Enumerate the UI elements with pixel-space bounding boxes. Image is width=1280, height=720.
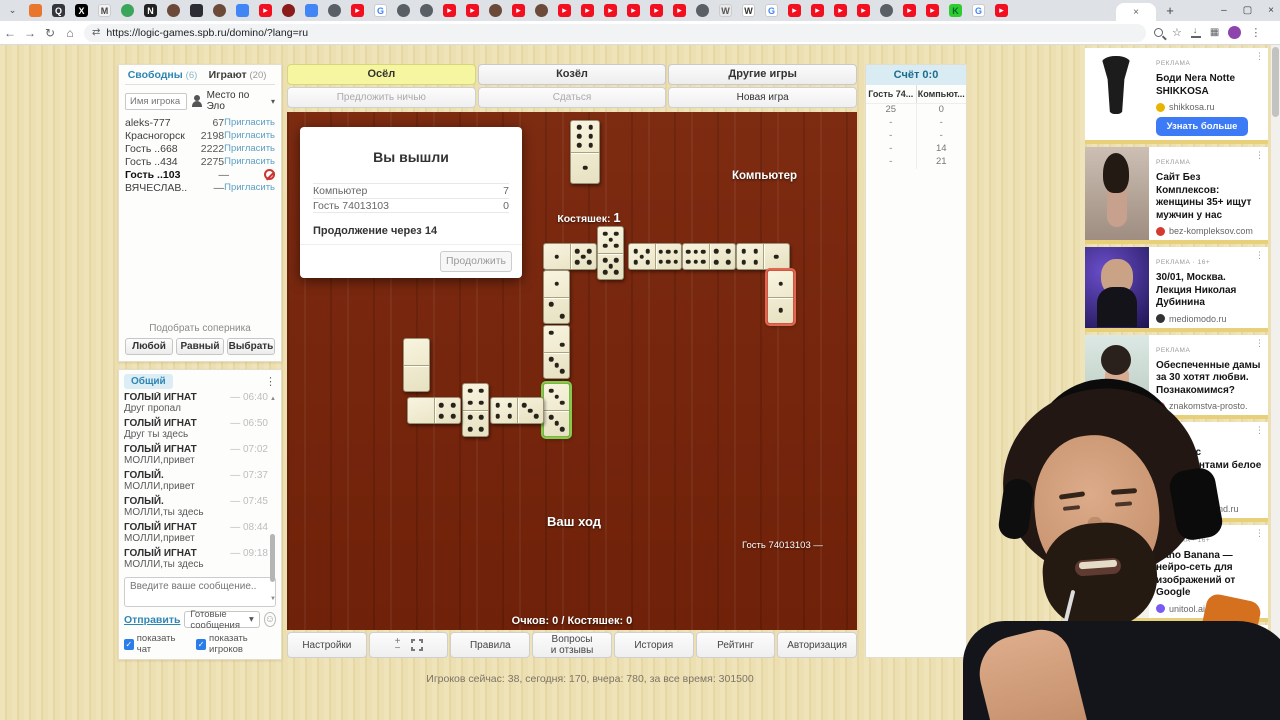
toolbar-button[interactable]: Рейтинг: [696, 632, 776, 658]
player-name: Гость ..103: [125, 169, 197, 181]
pip: [714, 260, 719, 265]
domino-half: [434, 398, 461, 423]
domino-half: [404, 365, 429, 392]
zoom-in-out-icon[interactable]: +−: [395, 638, 401, 652]
domino-half: [408, 398, 434, 423]
bottom-toolbar: Настройки+−ПравилаВопросыи отзывыИстория…: [287, 632, 857, 658]
message-time: — 07:37: [230, 470, 268, 481]
invite-link[interactable]: Пригласить: [224, 143, 275, 154]
ad-image: [1085, 48, 1149, 140]
game-tab[interactable]: Козёл: [478, 64, 667, 85]
pinned-tab-yt-icon[interactable]: ▸: [581, 4, 594, 17]
pinned-tab-q-icon[interactable]: Q: [52, 4, 65, 17]
domino-half: [629, 244, 655, 269]
pip: [560, 427, 565, 432]
match-button[interactable]: Любой: [125, 338, 173, 355]
ad-card[interactable]: РЕКЛАМА · 16+⋮Nano Banana — нейро-сеть д…: [1085, 525, 1268, 622]
pip: [560, 369, 565, 374]
score-row: --: [866, 130, 966, 143]
player-rating: 2198: [194, 130, 225, 142]
domino-half: [463, 384, 488, 410]
game-board[interactable]: Костяшек: 1 Компьютер Ваш ход Гость 7401…: [287, 112, 857, 630]
pip: [554, 421, 559, 426]
message-author: ГОЛЫЙ.: [124, 496, 164, 507]
corner: [411, 647, 415, 651]
ad-menu-icon[interactable]: ⋮: [1255, 528, 1264, 539]
pinned-tab-globe-icon[interactable]: [880, 4, 893, 17]
message-text: МОЛЛИ,привет: [124, 455, 268, 466]
player-rating: —: [194, 182, 225, 194]
pinned-tab-yt-icon[interactable]: ▸: [788, 4, 801, 17]
ad-card[interactable]: РЕКЛАМА · 16+⋮30/01, Москва. Лекция Нико…: [1085, 247, 1268, 332]
domino-tile-4-3: [490, 397, 544, 424]
pinned-tab-yt-icon[interactable]: ▸: [512, 4, 525, 17]
domino-tile-1-1: [767, 270, 794, 324]
toolbar-button[interactable]: Авторизация: [777, 632, 857, 658]
player-search-row: Место по Эло ▾: [125, 90, 275, 112]
pinned-tab-globe-icon[interactable]: [328, 4, 341, 17]
chat-message: ГОЛЫЙ ИГНАТ— 06:40Друг пропал: [124, 392, 268, 414]
score-rows: 250-----14-21: [866, 104, 966, 169]
game-tab[interactable]: Осёл: [287, 64, 476, 85]
message-time: — 07:02: [230, 444, 268, 455]
message-author: ГОЛЫЙ ИГНАТ: [124, 548, 197, 559]
ad-domain-icon: [1156, 402, 1165, 411]
pip: [468, 415, 473, 420]
boneyard-label: Костяшек:: [557, 213, 610, 225]
message-header: ГОЛЫЙ ИГНАТ— 06:50: [124, 418, 268, 429]
pip: [560, 314, 565, 319]
ad-title[interactable]: 30/01, Москва. Лекция Николая Дубинина: [1156, 272, 1263, 310]
ad-menu-icon[interactable]: ⋮: [1255, 150, 1264, 161]
corner: [419, 647, 423, 651]
pip: [603, 244, 608, 249]
pip: [603, 270, 608, 275]
zoom-search-icon[interactable]: [1154, 28, 1163, 37]
pinned-tab-yt-icon[interactable]: ▸: [443, 4, 456, 17]
pinned-tab-red-circle-icon[interactable]: [282, 4, 295, 17]
ad-card[interactable]: РЕКЛАМА · 16+⋮ный Гамлетльныхваря: [1085, 625, 1268, 703]
ad-cta-button[interactable]: Узнать больше: [1156, 117, 1248, 136]
domino-tile-0-0: [403, 338, 430, 392]
pinned-tab-brown-icon[interactable]: [489, 4, 502, 17]
pip: [451, 414, 456, 419]
ad-domain-text: mediomodo.ru: [1169, 314, 1227, 324]
game-tab[interactable]: Другие игры: [668, 64, 857, 85]
pinned-tab-yt-icon[interactable]: ▸: [673, 4, 686, 17]
pinned-tabs[interactable]: ⌄QXMN▸▸G▸▸▸▸▸▸▸▸▸WWG▸▸▸▸▸▸KG▸: [6, 4, 1018, 17]
toolbar-button-label: Вопросыи отзывы: [551, 634, 594, 656]
message-text: МОЛЛИ,ты здесь: [124, 507, 268, 518]
sort-label: Место по Эло: [207, 90, 268, 112]
ad-title[interactable]: Сайт Без Комплексов: женщины 35+ ищут му…: [1156, 172, 1263, 222]
ad-domain-icon: [1156, 504, 1165, 513]
pinned-tab-yt-icon[interactable]: ▸: [604, 4, 617, 17]
pinned-tab-globe-icon[interactable]: [696, 4, 709, 17]
ad-domain-row[interactable]: mediomodo.ru: [1156, 314, 1263, 324]
domino-half: [544, 326, 569, 352]
ad-title[interactable]: Nano Banana — нейро-сеть для изображений…: [1156, 550, 1263, 600]
pip: [577, 125, 582, 130]
score-title: Счёт 0:0: [866, 65, 966, 85]
message-author: ГОЛЫЙ.: [124, 470, 164, 481]
domino-half: [544, 297, 569, 324]
pinned-tab-brown-icon[interactable]: [535, 4, 548, 17]
dialog-score-row: Компьютер7: [313, 183, 509, 198]
invite-link[interactable]: Пригласить: [224, 156, 275, 167]
pinned-tab-yt-icon[interactable]: ▸: [627, 4, 640, 17]
pinned-tab-w-icon[interactable]: W: [719, 4, 732, 17]
presets-label: Готовые сообщения: [190, 609, 245, 631]
minus-icon[interactable]: −: [395, 645, 401, 652]
pip: [694, 249, 699, 254]
domino-half: [655, 244, 682, 269]
ad-title[interactable]: Боди Nera Notte SHIKKOSA: [1156, 73, 1263, 98]
message-author: ГОЛЫЙ ИГНАТ: [124, 522, 197, 533]
pinned-tab-yt-icon[interactable]: ▸: [926, 4, 939, 17]
ad-menu-icon[interactable]: ⋮: [1255, 628, 1264, 639]
score-value: -: [866, 130, 916, 143]
pinned-tab-k-icon[interactable]: K: [949, 4, 962, 17]
pinned-tab-g-icon[interactable]: G: [374, 4, 387, 17]
game-action-button[interactable]: Новая игра: [668, 87, 857, 108]
ad-body: РЕКЛАМА · 16+⋮30/01, Москва. Лекция Нико…: [1149, 247, 1268, 328]
pinned-tab-g-icon[interactable]: G: [972, 4, 985, 17]
ad-card[interactable]: РЕКЛАМА⋮Сайт Без Комплексов: женщины 35+…: [1085, 147, 1268, 244]
pip: [495, 414, 500, 419]
chat-message-list[interactable]: ГОЛЫЙ ИГНАТ— 06:40Друг пропалГОЛЫЙ ИГНАТ…: [124, 392, 276, 575]
corner: [411, 639, 415, 643]
browser-toolbar: ← → ↻ ⌂ ⇄ https://logic-games.spb.ru/dom…: [0, 21, 1280, 45]
toolbar-button[interactable]: Настройки: [287, 632, 367, 658]
chat-input[interactable]: [124, 577, 276, 607]
pip: [774, 254, 779, 259]
pip: [549, 415, 554, 420]
ad-menu-icon[interactable]: ⋮: [1255, 338, 1264, 349]
chat-header: Общий ⋮: [124, 374, 276, 389]
message-author: ГОЛЫЙ ИГНАТ: [124, 418, 197, 429]
close-button[interactable]: ×: [1268, 5, 1274, 16]
invite-link[interactable]: Пригласить: [224, 130, 275, 141]
pip: [560, 343, 565, 348]
game-action-button: Сдаться: [478, 87, 667, 108]
pinned-tab-yt-icon[interactable]: ▸: [466, 4, 479, 17]
pip: [754, 249, 759, 254]
domino-half: [544, 244, 570, 269]
pip: [451, 403, 456, 408]
zoom-group: +−: [395, 638, 423, 652]
extensions-icon[interactable]: ▦: [1210, 27, 1219, 38]
checkbox-label: показать игроков: [209, 633, 276, 655]
pip: [439, 403, 444, 408]
ad-label: РЕКЛАМА · 16+: [1156, 259, 1210, 266]
active-tab[interactable]: ×: [1116, 3, 1156, 21]
pinned-tab-green-dot-icon[interactable]: [121, 4, 134, 17]
pinned-tab-chevron-icon[interactable]: ⌄: [6, 4, 19, 17]
pinned-tab-yt-icon[interactable]: ▸: [558, 4, 571, 17]
ad-domain-icon: [1156, 314, 1165, 323]
chat-scrollbar[interactable]: ▲ ▼: [269, 398, 276, 600]
pinned-tab-yt-icon[interactable]: ▸: [650, 4, 663, 17]
ad-domain-text: unitool.ai: [1169, 604, 1205, 614]
pip: [479, 388, 484, 393]
page-scrollbar[interactable]: [1271, 45, 1280, 720]
pinned-tab-brown-icon[interactable]: [213, 4, 226, 17]
preset-messages-dropdown[interactable]: Готовые сообщения ▾: [184, 611, 259, 628]
checkbox-icon[interactable]: ✓: [124, 639, 134, 650]
pip: [549, 388, 554, 393]
domino-half: [463, 410, 488, 437]
ad-title[interactable]: Кольцо с бриллиантами белое золото: [1156, 447, 1263, 485]
ad-domain-row[interactable]: znakomstva-prosto.: [1156, 401, 1263, 411]
domino-half: [544, 271, 569, 297]
url-bar[interactable]: ⇄ https://logic-games.spb.ru/domino/?lan…: [84, 24, 1146, 42]
page: Свободны (6) Играют (20) Место по Эло ▾ …: [0, 45, 1280, 720]
domino-half: [768, 297, 793, 324]
pinned-tab-dark-icon[interactable]: [190, 4, 203, 17]
message-text: МОЛЛИ,привет: [124, 481, 268, 492]
pinned-tab-brown-icon[interactable]: [167, 4, 180, 17]
browser-tabstrip: ⌄QXMN▸▸G▸▸▸▸▸▸▸▸▸WWG▸▸▸▸▸▸KG▸: [0, 0, 1280, 21]
ad-title-partial: ный Гамлетльныхваря: [1156, 650, 1263, 688]
ad-label: РЕКЛАМА: [1156, 434, 1190, 441]
minimize-button[interactable]: –: [1221, 5, 1227, 16]
pinned-tab-yt-icon[interactable]: ▸: [351, 4, 364, 17]
back-icon[interactable]: ←: [0, 26, 20, 40]
person-hand: [972, 623, 1093, 720]
pip: [633, 260, 638, 265]
ad-domain-text: shikkosa.ru: [1169, 102, 1215, 112]
home-icon[interactable]: ⌂: [60, 26, 80, 40]
pinned-tab-p-icon[interactable]: [29, 4, 42, 17]
dialog-score-rows: Компьютер7Гость 740131030: [313, 183, 509, 213]
domino-half: [598, 253, 623, 280]
pinned-tab-doc-icon[interactable]: [305, 4, 318, 17]
pinned-tab-m-icon[interactable]: M: [98, 4, 111, 17]
ad-price: 9 151 700 ₽: [1156, 488, 1263, 500]
emoji-icon[interactable]: ☺: [264, 612, 276, 627]
chat-tab-general[interactable]: Общий: [124, 374, 173, 389]
ad-menu-icon[interactable]: ⋮: [1255, 425, 1264, 436]
pinned-tab-globe-icon[interactable]: [420, 4, 433, 17]
player-rating: —: [197, 169, 229, 181]
pip: [614, 270, 619, 275]
tab-free-players[interactable]: Свободны (6): [125, 69, 200, 81]
domino-half: [737, 244, 763, 269]
tab-count: (20): [250, 70, 267, 81]
player-list: aleks-77767ПригласитьКрасногорск2198Приг…: [125, 116, 275, 194]
pinned-tab-doc-icon[interactable]: [236, 4, 249, 17]
ad-card[interactable]: РЕКЛАМА⋮Кольцо с бриллиантами белое золо…: [1085, 422, 1268, 522]
toolbar-button[interactable]: История: [614, 632, 694, 658]
invite-link[interactable]: Пригласить: [224, 117, 275, 128]
chat-menu-icon[interactable]: ⋮: [265, 375, 276, 388]
ad-image: [1085, 422, 1149, 518]
dialog-player-name: Компьютер: [313, 185, 367, 197]
pip: [581, 254, 586, 259]
profile-avatar[interactable]: [1228, 26, 1241, 39]
pinned-tab-n-icon[interactable]: N: [144, 4, 157, 17]
scroll-down-icon[interactable]: ▼: [270, 596, 276, 602]
ad-domain-icon: [1156, 227, 1165, 236]
player-rating: 2222: [194, 143, 225, 155]
players-tabs: Свободны (6) Играют (20): [125, 69, 275, 85]
message-author: ГОЛЫЙ ИГНАТ: [124, 444, 197, 455]
ad-card[interactable]: РЕКЛАМА⋮Боди Nera Notte SHIKKOSAshikkosa…: [1085, 48, 1268, 144]
ad-menu-icon[interactable]: ⋮: [1255, 51, 1264, 62]
pip: [522, 403, 527, 408]
round-result-dialog: Вы вышли Компьютер7Гость 740131030 Продо…: [300, 127, 522, 278]
fullscreen-icon[interactable]: [411, 639, 423, 651]
pinned-tab-g-icon[interactable]: G: [765, 4, 778, 17]
browser-menu-icon[interactable]: ⋮: [1250, 26, 1261, 39]
ad-domain-row[interactable]: alrosadiamond.ru: [1156, 504, 1263, 514]
pip: [587, 260, 592, 265]
ad-label: РЕКЛАМА: [1156, 60, 1190, 67]
scroll-up-icon[interactable]: ▲: [270, 396, 276, 402]
download-icon[interactable]: [1191, 28, 1201, 38]
pip: [614, 258, 619, 263]
forward-icon[interactable]: →: [20, 26, 40, 40]
pip: [741, 260, 746, 265]
chevron-down-icon: ▾: [271, 97, 275, 106]
score-value: -: [916, 117, 967, 130]
player-name-input[interactable]: [125, 93, 187, 110]
domino-half: [709, 244, 736, 269]
pinned-tab-ww-icon[interactable]: W: [742, 4, 755, 17]
dialog-player-score: 7: [503, 185, 509, 197]
domino-tile-5-6: [628, 243, 682, 270]
pip: [549, 330, 554, 335]
ad-image: [1085, 147, 1149, 240]
matchmaking-label: Подобрать соперника: [125, 323, 275, 334]
pip: [726, 260, 731, 265]
ad-menu-icon[interactable]: ⋮: [1255, 250, 1264, 261]
match-button[interactable]: Равный: [176, 338, 224, 355]
matchmaking-buttons: ЛюбойРавныйВыбрать: [125, 338, 275, 355]
domino-half: [517, 398, 544, 423]
pip: [588, 125, 593, 130]
ad-label: РЕКЛАМА · 16+: [1156, 637, 1210, 644]
scrollbar-thumb[interactable]: [270, 534, 275, 582]
pinned-tab-yt-icon[interactable]: ▸: [995, 4, 1008, 17]
pip: [608, 264, 613, 269]
window-controls: – ▢ ×: [1221, 0, 1274, 21]
ad-card[interactable]: РЕКЛАМА⋮Обеспеченные дамы за 30 хотят лю…: [1085, 335, 1268, 420]
pinned-tab-yt-icon[interactable]: ▸: [857, 4, 870, 17]
ad-domain-text: znakomstva-prosto.: [1169, 401, 1248, 411]
ad-domain-icon: [1156, 103, 1165, 112]
pip: [778, 282, 783, 287]
person-eyebrow: [1059, 491, 1085, 500]
chat-message: ГОЛЫЙ.— 07:45МОЛЛИ,ты здесь: [124, 496, 268, 518]
tune-icon[interactable]: ⇄: [92, 27, 100, 38]
toolbar-button[interactable]: Правила: [450, 632, 530, 658]
send-message-button[interactable]: Отправить: [124, 614, 180, 626]
score-value: -: [866, 156, 916, 169]
score-value: 25: [866, 104, 916, 117]
domino-half: [571, 152, 599, 184]
screen: ⌄QXMN▸▸G▸▸▸▸▸▸▸▸▸WWG▸▸▸▸▸▸KG▸ × + – ▢ × …: [0, 0, 1280, 720]
pinned-tab-yt-icon[interactable]: ▸: [811, 4, 824, 17]
chat-message: ГОЛЫЙ ИГНАТ— 06:50Друг ты здесь: [124, 418, 268, 440]
headphone-cup-left: [997, 477, 1035, 541]
pip: [646, 249, 651, 254]
pip: [549, 357, 554, 362]
player-name: Гость ..668: [125, 143, 194, 155]
match-button[interactable]: Выбрать: [227, 338, 275, 355]
chat-message: ГОЛЫЙ ИГНАТ— 09:18МОЛЛИ,ты здесь: [124, 548, 268, 570]
bookmark-star-icon[interactable]: ☆: [1172, 26, 1182, 39]
pip: [666, 249, 671, 254]
ad-domain-row[interactable]: unitool.ai: [1156, 604, 1263, 614]
player-row: Гость ..103—: [125, 168, 275, 181]
ads-column: РЕКЛАМА⋮Боди Nera Notte SHIKKOSAshikkosa…: [1085, 48, 1268, 706]
checkbox-show-chat[interactable]: ✓показать чат: [124, 633, 186, 655]
score-columns: Гость 74...Компьют...: [866, 85, 966, 104]
ad-domain-row[interactable]: bez-kompleksov.com: [1156, 226, 1263, 236]
player-row: aleks-77767Пригласить: [125, 116, 275, 129]
pip: [479, 427, 484, 432]
dialog-player-name: Гость 74013103: [313, 200, 389, 212]
domino-half: [570, 244, 597, 269]
tab-close-icon[interactable]: ×: [1133, 7, 1139, 18]
pip: [588, 134, 593, 139]
domino-tile-4-1: [736, 243, 790, 270]
pip: [555, 254, 560, 259]
pip: [741, 249, 746, 254]
message-header: ГОЛЫЙ.— 07:45: [124, 496, 268, 507]
tab-playing-players[interactable]: Играют (20): [200, 69, 275, 81]
pip: [560, 401, 565, 406]
url-text[interactable]: https://logic-games.spb.ru/domino/?lang=…: [106, 27, 308, 39]
zoom-controls-button[interactable]: +−: [369, 632, 449, 658]
domino-half: [544, 410, 569, 437]
game-actions: Предложить ничьюСдатьсяНовая игра: [287, 87, 857, 108]
dialog-footer: Продолжить: [300, 244, 522, 278]
person-eye: [1063, 505, 1080, 511]
invite-link[interactable]: Пригласить: [224, 182, 275, 193]
reload-icon[interactable]: ↻: [40, 26, 60, 40]
ad-title[interactable]: Обеспеченные дамы за 30 хотят любви. Поз…: [1156, 360, 1263, 398]
pip: [640, 254, 645, 259]
headphone-wire: [1051, 590, 1076, 674]
message-text: МОЛЛИ,привет: [124, 533, 268, 544]
maximize-button[interactable]: ▢: [1243, 5, 1252, 16]
score-value: -: [866, 143, 916, 156]
toolbar-button[interactable]: Вопросыи отзывы: [532, 632, 612, 658]
blocked-icon: [264, 169, 275, 180]
pinned-tab-yt-icon[interactable]: ▸: [834, 4, 847, 17]
continue-button[interactable]: Продолжить: [440, 251, 512, 272]
ad-domain-row[interactable]: shikkosa.ru: [1156, 102, 1263, 112]
player-label: Гость 74013103 —: [742, 540, 823, 551]
pip: [587, 249, 592, 254]
pinned-tab-yt-icon[interactable]: ▸: [259, 4, 272, 17]
checkbox-icon[interactable]: ✓: [196, 639, 206, 650]
dialog-countdown: Продолжение через 14: [313, 225, 509, 237]
player-name: Гость 74013103: [742, 540, 811, 551]
sort-dropdown[interactable]: Место по Эло ▾: [207, 90, 275, 112]
pinned-tab-yt-icon[interactable]: ▸: [903, 4, 916, 17]
scrollbar-thumb[interactable]: [1272, 47, 1279, 117]
pip: [673, 259, 678, 264]
new-tab-button[interactable]: +: [1162, 3, 1178, 19]
pinned-tab-x-icon[interactable]: X: [75, 4, 88, 17]
pip: [583, 166, 588, 171]
checkbox-show-players[interactable]: ✓показать игроков: [196, 633, 276, 655]
pinned-tab-globe-icon[interactable]: [397, 4, 410, 17]
